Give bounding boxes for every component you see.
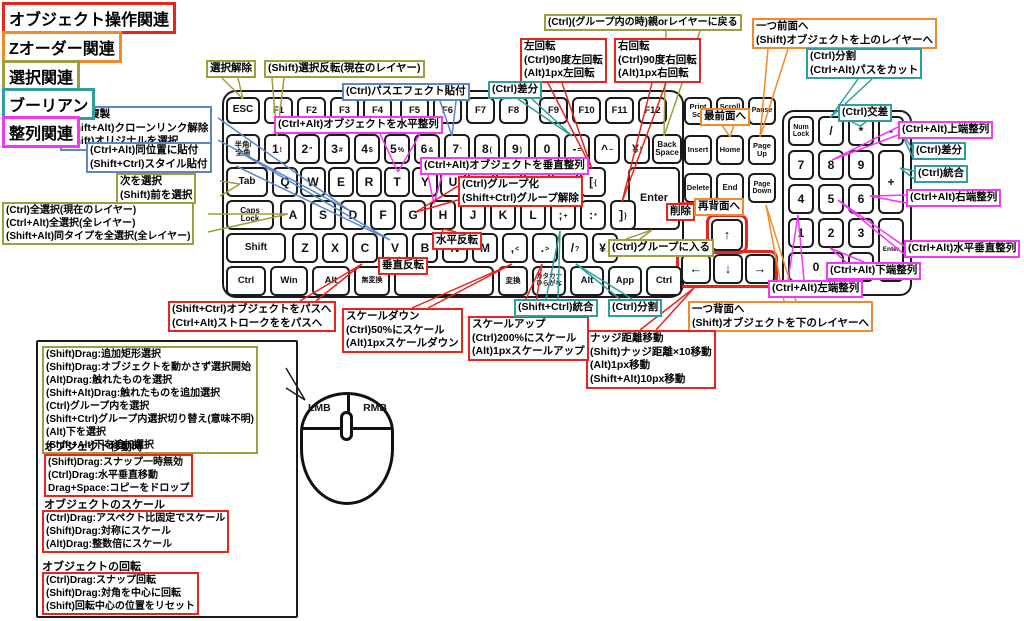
callout-object-to-path: (Shift+Ctrl)オブジェクトをパスへ(Ctrl+Alt)ストロークををパ…: [168, 301, 336, 332]
key-colon-label: :: [589, 209, 593, 221]
key-rbracket-label: ]: [619, 209, 623, 221]
key-slash-label: /: [571, 242, 574, 254]
key-alt-l: Alt: [312, 266, 350, 296]
callout-mouse-select-box-line: (Shift+Alt)Drag:触れたものを追加選択: [46, 387, 254, 400]
key-4: 4$: [354, 134, 380, 164]
key-f5-label: F5: [409, 106, 420, 116]
key-b-label: B: [421, 242, 430, 254]
key-w: W: [300, 167, 326, 197]
key-np3: 3: [848, 218, 874, 248]
mouse-wheel-icon: [340, 411, 353, 441]
key-arrow-down-label: ↓: [725, 262, 732, 275]
key-pgdn: Page Down: [748, 173, 776, 203]
key-ctrl-l-label: Ctrl: [238, 276, 254, 286]
key-esc-label: ESC: [233, 105, 254, 115]
key-pause-label: Pause: [752, 107, 773, 114]
key-7-shift-label: ': [460, 147, 462, 154]
legend-zorder: Zオーダー関連: [2, 31, 122, 63]
key-g: G: [400, 200, 426, 230]
key-henkan: 変換: [498, 266, 528, 296]
key-app-label: App: [616, 276, 634, 286]
key-q-label: Q: [280, 176, 289, 188]
key-arrow-left-label: ←: [690, 262, 703, 275]
key-f9-label: F9: [548, 106, 559, 116]
key-backspace: Back Space: [652, 134, 682, 164]
key-caps: Caps Lock: [226, 200, 274, 230]
key-d-label: D: [349, 209, 358, 221]
key-home: Home: [716, 135, 744, 165]
key-kana: カタカナ ひらがな: [532, 266, 566, 296]
key-home-label: Home: [720, 146, 741, 154]
key-np8: 8: [818, 150, 844, 180]
callout-enter-group-line: (Ctrl)グループに入る: [612, 241, 710, 255]
callout-scale-box-line: (Alt)Drag:整数倍にスケール: [46, 538, 225, 551]
callout-path-division-line: (Ctrl)分割: [810, 50, 918, 64]
callout-mouse-select-box-line: (Ctrl)グループ内を選択: [46, 400, 254, 413]
key-caps-label: Caps Lock: [240, 207, 260, 223]
callout-rotate-right-line: (Ctrl)90度右回転: [618, 54, 697, 68]
callout-rotate-box-line: (Shift)Drag:対角を中心に回転: [46, 587, 195, 600]
key-enter-label: Enter: [640, 193, 668, 204]
key-1: 1!: [264, 134, 290, 164]
key-4-label: 4: [361, 143, 368, 155]
callout-nudge-move: ナッジ距離移動(Shift)ナッジ距離×10移動(Alt)1px移動(Shift…: [586, 330, 716, 389]
callout-division-bottom-line: (Ctrl)分割: [612, 301, 658, 315]
key-4-shift-label: $: [369, 147, 373, 154]
key-f11-label: F11: [612, 106, 628, 116]
key-f3-label: F3: [339, 106, 350, 116]
callout-rotate-box: (Ctrl)Drag:スナップ回転(Shift)Drag:対角を中心に回転(Sh…: [42, 572, 199, 615]
key-minus-shift-label: =: [577, 147, 581, 154]
callout-flip-vertical: 垂直反転: [378, 257, 428, 275]
callout-flip-vertical-line: 垂直反転: [382, 259, 424, 273]
key-yen1-label: ¥: [632, 143, 639, 155]
key-q: Q: [272, 167, 298, 197]
callout-scale-down: スケールダウン(Ctrl)50%にスケール(Alt)1pxスケールダウン: [342, 308, 463, 353]
key-6-shift-label: &: [428, 147, 433, 154]
callout-rotate-left-line: (Alt)1px左回転: [524, 67, 603, 81]
callout-back-most-line: 再背面へ: [698, 200, 740, 214]
mouse-rmb-label: RMB: [363, 402, 387, 414]
key-g-label: G: [408, 209, 417, 221]
callout-paste-path-effect: (Ctrl)パスエフェクト貼付: [342, 83, 470, 101]
key-f2-label: F2: [306, 106, 317, 116]
callout-scale-box-line: (Shift)Drag:対称にスケール: [46, 525, 225, 538]
key-semi-label: ;: [558, 209, 562, 221]
callout-scale-down-line: (Ctrl)50%にスケール: [346, 324, 459, 338]
key-np6: 6: [848, 184, 874, 214]
callout-scale-box: (Ctrl)Drag:アスペクト比固定でスケール(Shift)Drag:対称にス…: [42, 510, 229, 553]
callout-object-to-path-line: (Ctrl+Alt)ストロークををパスへ: [172, 317, 332, 331]
key-x-label: X: [331, 242, 339, 254]
callout-union-bottom: (Shift+Ctrl)統合: [514, 299, 598, 317]
key-f8: F8: [499, 97, 528, 124]
callout-flip-horizontal-line: 水平反転: [436, 234, 478, 248]
key-np-enter-label: Enter: [883, 247, 900, 254]
callout-scale-down-line: スケールダウン: [346, 310, 459, 324]
key-arrow-down: ↓: [713, 254, 743, 284]
key-ctrl-r: Ctrl: [646, 266, 682, 296]
callout-align-center-hv-line: (Ctrl+Alt)水平垂直整列: [908, 242, 1016, 256]
key-kana-label: カタカナ ひらがな: [536, 274, 562, 287]
callout-enter-group: (Ctrl)グループに入る: [608, 239, 714, 257]
key-t: T: [384, 167, 410, 197]
key-pgup-label: Page Up: [753, 142, 771, 157]
callout-invert-selection: (Shift)選択反転(現在のレイヤー): [264, 60, 425, 78]
callout-paste-path-effect-line: (Ctrl)パスエフェクト貼付: [346, 85, 466, 99]
callout-union-right: (Ctrl)統合: [914, 165, 968, 183]
key-hankaku-label: 半角/ 全角: [234, 141, 251, 156]
key-arrow-up: ↑: [711, 219, 743, 251]
key-comma: ,<: [502, 233, 528, 263]
key-y-label: Y: [421, 176, 429, 188]
key-f8-label: F8: [508, 106, 519, 116]
callout-scale-up: スケールアップ(Ctrl)200%にスケール(Alt)1pxスケールアップ: [468, 316, 589, 361]
key-shift-label: Shift: [245, 243, 267, 253]
key-np-plus: +: [878, 150, 904, 214]
callout-nudge-move-line: (Shift)ナッジ距離×10移動: [590, 346, 712, 360]
key-5-label: 5: [390, 143, 397, 155]
callout-move-box: (Shift)Drag:スナップ一時無効(Ctrl)Drag:水平垂直移動Dra…: [44, 454, 193, 497]
key-arrow-right-label: →: [754, 262, 767, 275]
key-np-slash-label: /: [829, 125, 832, 137]
callout-difference-right-line: (Ctrl)差分: [916, 144, 962, 158]
callout-select-next: 次を選択(Shift)前を選択: [116, 173, 196, 204]
key-k-label: K: [499, 209, 508, 221]
key-muhenkan-label: 無変換: [362, 277, 383, 284]
callout-invert-selection-line: (Shift)選択反転(現在のレイヤー): [268, 62, 421, 76]
key-np5-label: 5: [828, 193, 835, 205]
key-np3-label: 3: [858, 227, 865, 239]
key-d: D: [340, 200, 366, 230]
key-arrow-left: ←: [681, 254, 711, 284]
callout-align-center-hv: (Ctrl+Alt)水平垂直整列: [904, 240, 1020, 258]
key-alt-r-label: Alt: [581, 276, 594, 286]
callout-scale-down-line: (Alt)1pxスケールダウン: [346, 337, 459, 351]
key-hankaku: 半角/ 全角: [226, 134, 260, 164]
callout-mouse-select-box-line: (Shift)Drag:オブジェクトを動かさず選択開始: [46, 361, 254, 374]
callout-intersection-line: (Ctrl)交差: [842, 106, 888, 120]
callout-group-return-line: (Ctrl)(グループ内の時)親orレイヤーに戻る: [548, 16, 738, 29]
key-np2-label: 2: [828, 227, 835, 239]
key-colon: :*: [580, 200, 606, 230]
mouse-lmb-label: LMB: [308, 402, 331, 414]
callout-rotate-right: 右回転(Ctrl)90度右回転(Alt)1px右回転: [614, 38, 701, 83]
key-f-label: F: [379, 209, 386, 221]
key-rbracket: ]}: [610, 200, 636, 230]
key-colon-shift-label: *: [594, 213, 597, 220]
key-yen1-shift-label: |: [640, 147, 642, 154]
callout-group-line: (Ctrl)グループ化: [462, 178, 579, 192]
callout-object-to-path-line: (Shift+Ctrl)オブジェクトをパスへ: [172, 303, 332, 317]
callout-front-one-line: (Shift)オブジェクトを上のレイヤーへ: [756, 34, 933, 48]
key-3-label: 3: [331, 143, 338, 155]
callout-align-right-line: (Ctrl+Alt)右端整列: [910, 191, 997, 205]
key-t-label: T: [393, 176, 400, 188]
callout-delete-line: 削除: [670, 205, 691, 219]
key-np6-label: 6: [858, 193, 865, 205]
callout-front-one-line: 一つ前面へ: [756, 20, 933, 34]
key-f: F: [370, 200, 396, 230]
key-h: H: [430, 200, 456, 230]
key-f4-label: F4: [372, 106, 383, 116]
key-tab-label: Tab: [238, 177, 255, 187]
callout-nudge-move-line: (Alt)1px移動: [590, 359, 712, 373]
callout-mouse-select-box-line: (Alt)Drag:触れたものを選択: [46, 374, 254, 387]
key-numlock: Num Lock: [788, 116, 814, 146]
callout-delete: 削除: [666, 203, 695, 221]
key-f6-label: F6: [442, 106, 453, 116]
callout-select-all-line: (Shift+Alt)同タイプを全選択(全レイヤー): [6, 230, 190, 243]
callout-scale-box-line: (Ctrl)Drag:アスペクト比固定でスケール: [46, 512, 225, 525]
key-z-label: Z: [301, 242, 308, 254]
key-6-label: 6: [421, 143, 428, 155]
callout-rotate-left-line: (Ctrl)90度左回転: [524, 54, 603, 68]
key-slash-shift-label: ?: [575, 246, 579, 253]
callout-rotate-left-line: 左回転: [524, 40, 603, 54]
key-rbracket-shift-label: }: [624, 213, 627, 220]
callout-select-next-line: 次を選択: [120, 175, 192, 189]
key-c-label: C: [361, 242, 370, 254]
key-h-label: H: [439, 209, 448, 221]
key-s: S: [310, 200, 336, 230]
key-2-shift-label: ": [309, 147, 312, 154]
key-l-label: L: [529, 209, 536, 221]
key-ctrl-l: Ctrl: [226, 266, 266, 296]
key-5-shift-label: %: [398, 147, 404, 154]
callout-rotate-left: 左回転(Ctrl)90度左回転(Alt)1px左回転: [520, 38, 607, 83]
callout-mouse-select-box-line: (Shift+Ctrl)グループ内選択切り替え(意味不明): [46, 413, 254, 426]
key-lbracket-shift-label: {: [594, 180, 597, 187]
callout-align-left: (Ctrl+Alt)左端整列: [768, 280, 863, 298]
callout-duplicate-line: (Shift+Alt)クローンリンク解除: [64, 122, 208, 136]
key-np9: 9: [848, 150, 874, 180]
key-ctrl-r-label: Ctrl: [656, 276, 672, 286]
callout-back-one: 一つ背面へ(Shift)オブジェクトを下のレイヤーへ: [688, 301, 873, 332]
key-lbracket-label: [: [589, 176, 593, 188]
key-a-label: A: [289, 209, 298, 221]
key-win-label: Win: [280, 276, 297, 286]
key-numlock-label: Num Lock: [793, 124, 809, 138]
callout-align-vertical-line: (Ctrl+Alt)オブジェクトを垂直整列: [424, 159, 585, 173]
key-np5: 5: [818, 184, 844, 214]
key-1-shift-label: !: [280, 147, 282, 154]
callout-back-most: 再背面へ: [694, 198, 744, 216]
callout-paste-in-place-line: (Ctrl+Alt)同位置に貼付: [90, 144, 208, 158]
key-f12-label: F12: [644, 106, 660, 116]
callout-select-next-line: (Shift)前を選択: [120, 189, 192, 203]
callout-rotate-box-line: (Shift)回転中心の位置をリセット: [46, 600, 195, 613]
callout-front-one: 一つ前面へ(Shift)オブジェクトを上のレイヤーへ: [752, 18, 937, 49]
mouse-diagram: LMB RMB: [300, 392, 394, 505]
key-alt-r: Alt: [570, 266, 604, 296]
callout-align-bottom-line: (Ctrl+Alt)下端整列: [830, 264, 917, 278]
callout-division-bottom: (Ctrl)分割: [608, 299, 662, 317]
callout-nudge-move-line: ナッジ距離移動: [590, 332, 712, 346]
key-e: E: [328, 167, 354, 197]
key-8-shift-label: (: [490, 147, 492, 154]
key-period-shift-label: >: [545, 246, 549, 253]
key-insert-label: Insert: [688, 146, 708, 154]
key-np-star-label: *: [859, 125, 864, 137]
callout-align-left-line: (Ctrl+Alt)左端整列: [772, 282, 859, 296]
callout-mouse-select-box: (Shift)Drag:追加矩形選択(Shift)Drag:オブジェクトを動かさ…: [42, 346, 258, 454]
callout-rotate-right-line: 右回転: [618, 40, 697, 54]
key-a: A: [280, 200, 306, 230]
callout-move-heading: オブジェクト移動時: [44, 440, 143, 454]
key-9-shift-label: ): [520, 147, 522, 154]
legend-object: オブジェクト操作関連: [2, 2, 176, 34]
callout-back-one-line: 一つ背面へ: [692, 303, 869, 317]
callout-scale-up-line: (Alt)1pxスケールアップ: [472, 345, 585, 359]
key-c: C: [352, 233, 378, 263]
key-np2: 2: [818, 218, 844, 248]
key-np0-label: 0: [813, 261, 820, 273]
key-f10-label: F10: [578, 106, 594, 116]
callout-move-box-line: (Shift)Drag:スナップ一時無効: [48, 456, 189, 469]
key-0-label: 0: [544, 143, 551, 155]
callout-difference-top: (Ctrl)差分: [488, 81, 542, 99]
key-yen1: ¥|: [624, 134, 650, 164]
key-np-minus-label: -: [889, 125, 893, 137]
key-caret-label: ^: [601, 143, 608, 155]
cheat-sheet: LMB RMB オブジェクト操作関連Zオーダー関連選択関連ブーリアン整列関連ES…: [0, 0, 1024, 621]
callout-mouse-select-box-line: (Alt)下を選択: [46, 426, 254, 439]
callout-front-most: 最前面へ: [700, 108, 750, 126]
legend-align: 整列関連: [2, 116, 80, 148]
key-pgdn-label: Page Down: [752, 181, 771, 195]
key-f11: F11: [605, 97, 634, 124]
callout-scale-up-line: (Ctrl)200%にスケール: [472, 332, 585, 346]
key-end-label: End: [722, 184, 737, 192]
key-f9: F9: [539, 97, 568, 124]
callout-group-line: (Shift+Ctrl)グループ解除: [462, 192, 579, 206]
callout-align-horizontal-line: (Ctrl+Alt)オブジェクトを水平整列: [278, 118, 439, 132]
key-3: 3#: [324, 134, 350, 164]
callout-union-bottom-line: (Shift+Ctrl)統合: [518, 301, 594, 315]
key-r-label: R: [365, 176, 374, 188]
key-r: R: [356, 167, 382, 197]
key-z: Z: [292, 233, 318, 263]
key-shift: Shift: [226, 233, 286, 263]
callout-difference-right: (Ctrl)差分: [912, 142, 966, 160]
callout-deselect: 選択解除: [206, 60, 256, 78]
key-tab: Tab: [226, 167, 268, 197]
callout-rotate-right-line: (Alt)1px右回転: [618, 67, 697, 81]
callout-select-all-line: (Ctrl+Alt)全選択(全レイヤー): [6, 217, 190, 230]
key-np9-label: 9: [858, 159, 865, 171]
key-np8-label: 8: [828, 159, 835, 171]
callout-align-top-line: (Ctrl+Alt)上端整列: [902, 123, 989, 137]
callout-align-top: (Ctrl+Alt)上端整列: [898, 121, 993, 139]
callout-scale-up-line: スケールアップ: [472, 318, 585, 332]
key-pgup: Page Up: [748, 135, 776, 165]
callout-paste-in-place-line: (Shift+Ctrl)スタイル貼付: [90, 158, 208, 172]
key-arrow-up-label: ↑: [724, 228, 731, 241]
callout-move-box-line: Drag+Space:コピーをドロップ: [48, 482, 189, 495]
key-slash: /?: [562, 233, 588, 263]
key-7-label: 7: [452, 143, 459, 155]
key-s-label: S: [319, 209, 327, 221]
key-3-shift-label: #: [339, 147, 343, 154]
key-x: X: [322, 233, 348, 263]
callout-rotate-box-line: (Ctrl)Drag:スナップ回転: [46, 574, 195, 587]
key-semi-shift-label: +: [563, 213, 567, 220]
key-henkan-label: 変換: [506, 277, 521, 285]
key-pause: Pause: [748, 97, 776, 125]
key-8-label: 8: [482, 143, 489, 155]
key-win: Win: [270, 266, 308, 296]
callout-align-right: (Ctrl+Alt)右端整列: [906, 189, 1001, 207]
key-minus-label: -: [572, 143, 576, 155]
key-v-label: V: [391, 242, 399, 254]
callout-nudge-move-line: (Shift+Alt)10px移動: [590, 373, 712, 387]
key-caret-shift-label: ~: [609, 147, 613, 154]
key-5: 5%: [384, 134, 410, 164]
callout-paste-in-place: (Ctrl+Alt)同位置に貼付(Shift+Ctrl)スタイル貼付: [86, 142, 212, 173]
callout-mouse-select-box-line: (Shift)Drag:追加矩形選択: [46, 348, 254, 361]
callout-difference-top-line: (Ctrl)差分: [492, 83, 538, 97]
key-period: .>: [532, 233, 558, 263]
callout-path-division: (Ctrl)分割(Ctrl+Alt)パスをカット: [806, 48, 922, 79]
key-esc: ESC: [226, 97, 260, 124]
key-2-label: 2: [301, 143, 308, 155]
key-backspace-label: Back Space: [655, 141, 679, 157]
key-np1-label: 1: [798, 227, 805, 239]
key-f1-label: F1: [273, 106, 284, 116]
key-insert: Insert: [684, 135, 712, 165]
callout-align-horizontal: (Ctrl+Alt)オブジェクトを水平整列: [274, 116, 443, 134]
callout-flip-horizontal: 水平反転: [432, 232, 482, 250]
callout-select-all-line: (Ctrl)全選択(現在のレイヤー): [6, 204, 190, 217]
key-app: App: [608, 266, 642, 296]
key-period-label: .: [541, 242, 544, 254]
callout-front-most-line: 最前面へ: [704, 110, 746, 124]
key-np1: 1: [788, 218, 814, 248]
key-delete-label: Delete: [687, 184, 710, 192]
key-f10: F10: [572, 97, 601, 124]
key-9-label: 9: [512, 143, 519, 155]
callout-union-right-line: (Ctrl)統合: [918, 167, 964, 181]
key-np7-label: 7: [798, 159, 805, 171]
callout-intersection: (Ctrl)交差: [838, 104, 892, 122]
callout-path-division-line: (Ctrl+Alt)パスをカット: [810, 64, 918, 78]
key-comma-shift-label: <: [515, 246, 519, 253]
callout-align-vertical: (Ctrl+Alt)オブジェクトを垂直整列: [420, 157, 589, 175]
key-caret: ^~: [594, 134, 620, 164]
key-e-label: E: [337, 176, 345, 188]
callout-align-bottom: (Ctrl+Alt)下端整列: [826, 262, 921, 280]
key-np-plus-label: +: [887, 176, 894, 188]
key-2: 2": [294, 134, 320, 164]
key-f12: F12: [638, 97, 667, 124]
key-1-label: 1: [272, 143, 279, 155]
key-alt-l-label: Alt: [325, 276, 338, 286]
key-yen2-label: ¥: [599, 242, 606, 254]
key-w-label: W: [307, 176, 318, 188]
callout-group: (Ctrl)グループ化(Shift+Ctrl)グループ解除: [458, 176, 583, 207]
callout-select-all: (Ctrl)全選択(現在のレイヤー)(Ctrl+Alt)全選択(全レイヤー)(S…: [2, 202, 194, 245]
callout-move-box-line: (Ctrl)Drag:水平垂直移動: [48, 469, 189, 482]
callout-move-heading-line: オブジェクト移動時: [44, 440, 143, 454]
callout-group-return: (Ctrl)(グループ内の時)親orレイヤーに戻る: [544, 14, 742, 31]
key-j-label: J: [470, 209, 477, 221]
key-f7: F7: [466, 97, 495, 124]
callout-deselect-line: 選択解除: [210, 62, 252, 76]
key-f7-label: F7: [475, 106, 486, 116]
key-np4: 4: [788, 184, 814, 214]
key-np4-label: 4: [798, 193, 805, 205]
